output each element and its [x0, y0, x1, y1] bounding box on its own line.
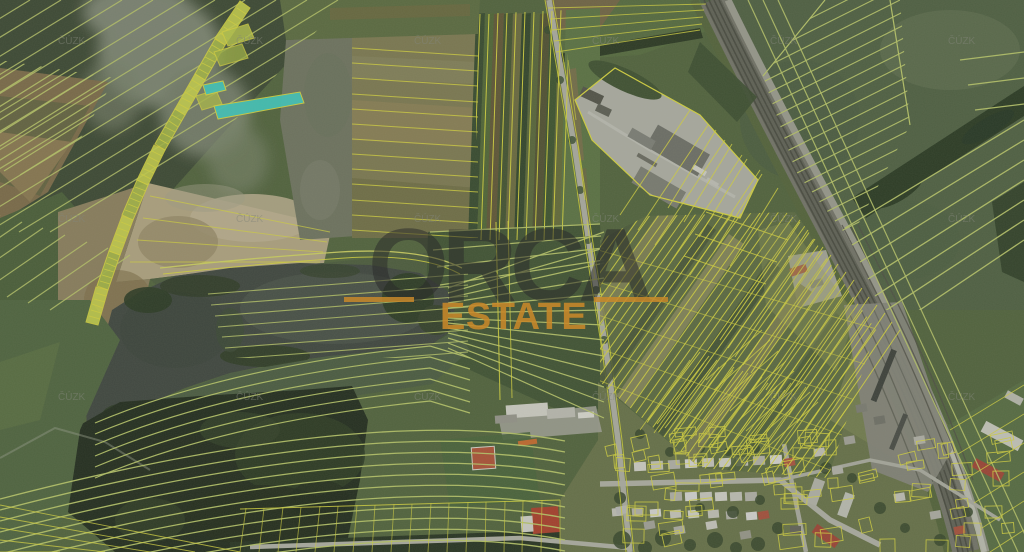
svg-text:ČÚZK: ČÚZK: [414, 34, 442, 47]
svg-text:ČÚZK: ČÚZK: [592, 34, 620, 47]
svg-text:ČÚZK: ČÚZK: [414, 390, 442, 403]
svg-text:ČÚZK: ČÚZK: [592, 390, 620, 403]
svg-text:ČÚZK: ČÚZK: [770, 390, 798, 403]
svg-text:ČÚZK: ČÚZK: [236, 390, 264, 403]
svg-text:ČÚZK: ČÚZK: [236, 34, 264, 47]
svg-text:ČÚZK: ČÚZK: [58, 390, 86, 403]
svg-text:ČÚZK: ČÚZK: [58, 212, 86, 225]
svg-text:ČÚZK: ČÚZK: [236, 212, 264, 225]
svg-text:ČÚZK: ČÚZK: [58, 34, 86, 47]
svg-text:ČÚZK: ČÚZK: [770, 212, 798, 225]
svg-text:ČÚZK: ČÚZK: [948, 212, 976, 225]
svg-text:ESTATE: ESTATE: [440, 296, 587, 338]
svg-text:ČÚZK: ČÚZK: [770, 34, 798, 47]
svg-text:ČÚZK: ČÚZK: [948, 34, 976, 47]
svg-text:ČÚZK: ČÚZK: [948, 390, 976, 403]
